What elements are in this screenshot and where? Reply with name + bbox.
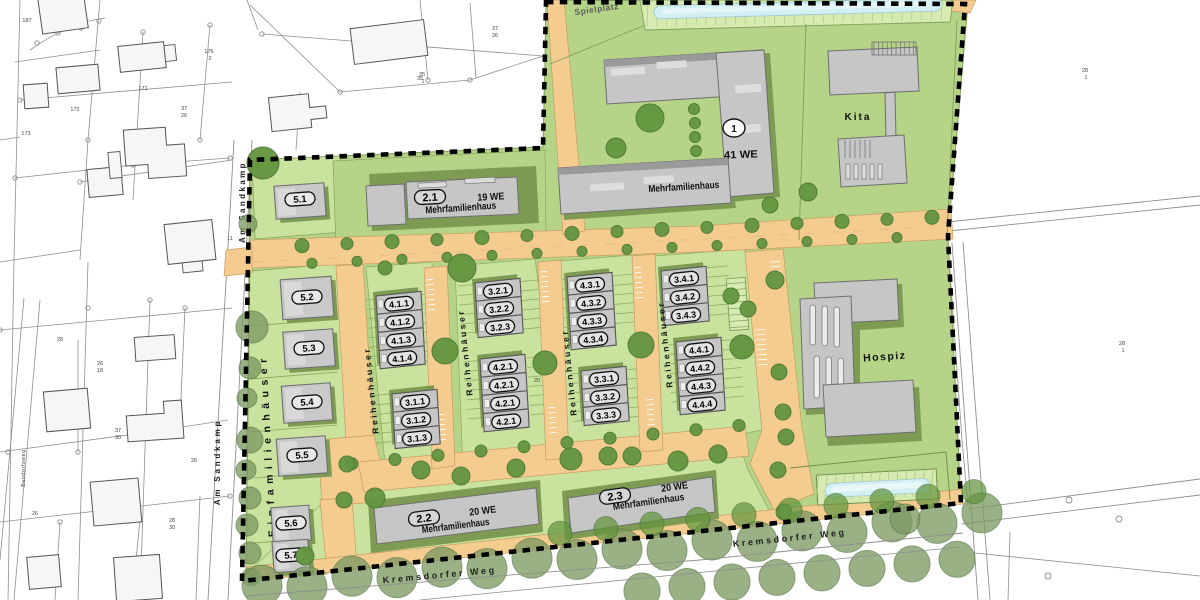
svg-text:37: 37: [115, 428, 121, 434]
svg-text:5.5: 5.5: [295, 450, 310, 462]
svg-text:4.3.4: 4.3.4: [583, 334, 604, 346]
svg-text:4.4.3: 4.4.3: [691, 380, 712, 392]
svg-text:3.1.3: 3.1.3: [407, 432, 428, 444]
svg-text:26: 26: [191, 458, 197, 464]
svg-text:2.1: 2.1: [422, 192, 438, 205]
svg-text:3.4.2: 3.4.2: [675, 291, 696, 303]
svg-text:4.1.4: 4.1.4: [392, 353, 413, 365]
svg-text:28: 28: [1082, 68, 1088, 74]
svg-text:3.1.2: 3.1.2: [406, 414, 427, 426]
svg-text:3.4.1: 3.4.1: [674, 273, 695, 285]
svg-text:4.1.1: 4.1.1: [389, 298, 410, 310]
svg-text:1: 1: [422, 79, 425, 85]
svg-text:3.2.2: 3.2.2: [489, 303, 510, 315]
svg-text:Am Sandkamp: Am Sandkamp: [213, 419, 222, 505]
svg-text:18: 18: [97, 368, 103, 374]
svg-text:28: 28: [1119, 341, 1125, 347]
svg-text:3.2.1: 3.2.1: [488, 285, 509, 297]
svg-text:5.2: 5.2: [300, 292, 314, 304]
svg-text:4.3.2: 4.3.2: [581, 297, 602, 309]
svg-text:5.6: 5.6: [284, 518, 298, 530]
svg-text:187: 187: [22, 18, 31, 24]
svg-text:1: 1: [731, 124, 737, 135]
svg-text:4.2.1: 4.2.1: [495, 397, 516, 409]
svg-text:37: 37: [492, 26, 498, 32]
svg-text:172: 172: [70, 107, 79, 113]
svg-text:3.2.3: 3.2.3: [490, 321, 511, 333]
svg-text:1: 1: [1122, 348, 1125, 354]
svg-text:4.2.1: 4.2.1: [494, 379, 515, 391]
svg-text:41 WE: 41 WE: [724, 148, 758, 161]
svg-text:3.3.1: 3.3.1: [594, 373, 615, 385]
svg-text:30: 30: [169, 525, 175, 531]
svg-text:5.3: 5.3: [302, 343, 316, 355]
svg-text:173: 173: [21, 131, 30, 137]
svg-text:28: 28: [57, 337, 63, 343]
svg-text:Kita: Kita: [845, 112, 872, 123]
svg-text:4.4.4: 4.4.4: [692, 399, 713, 411]
svg-text:5.4: 5.4: [300, 397, 315, 409]
svg-text:4.4.1: 4.4.1: [689, 344, 710, 356]
svg-text:4.3.1: 4.3.1: [580, 279, 601, 291]
svg-text:4.4.2: 4.4.2: [690, 362, 711, 374]
svg-text:176: 176: [204, 49, 213, 55]
svg-text:4.1.2: 4.1.2: [390, 316, 411, 328]
svg-text:5.1: 5.1: [293, 194, 308, 206]
svg-text:Bendorfsweg: Bendorfsweg: [21, 449, 27, 487]
svg-text:2: 2: [208, 56, 211, 62]
svg-text:1: 1: [1085, 75, 1088, 81]
svg-text:28: 28: [169, 518, 175, 524]
svg-text:35: 35: [419, 72, 425, 78]
svg-text:4.2.1: 4.2.1: [496, 416, 517, 428]
svg-text:26: 26: [492, 33, 498, 39]
svg-text:30: 30: [115, 435, 121, 441]
svg-text:171: 171: [138, 86, 147, 92]
svg-text:4.3.3: 4.3.3: [582, 315, 603, 327]
svg-text:26: 26: [97, 361, 103, 367]
svg-text:20: 20: [534, 378, 540, 384]
svg-text:3.3.3: 3.3.3: [596, 409, 617, 421]
svg-text:3.4.3: 3.4.3: [676, 309, 697, 321]
svg-text:26: 26: [32, 511, 38, 517]
svg-text:4.2.1: 4.2.1: [493, 361, 514, 373]
svg-text:26: 26: [181, 113, 187, 119]
svg-text:3.1.1: 3.1.1: [405, 396, 426, 408]
svg-text:3.3.2: 3.3.2: [595, 391, 616, 403]
svg-text:37: 37: [181, 106, 187, 112]
svg-text:4.1.3: 4.1.3: [391, 334, 412, 346]
